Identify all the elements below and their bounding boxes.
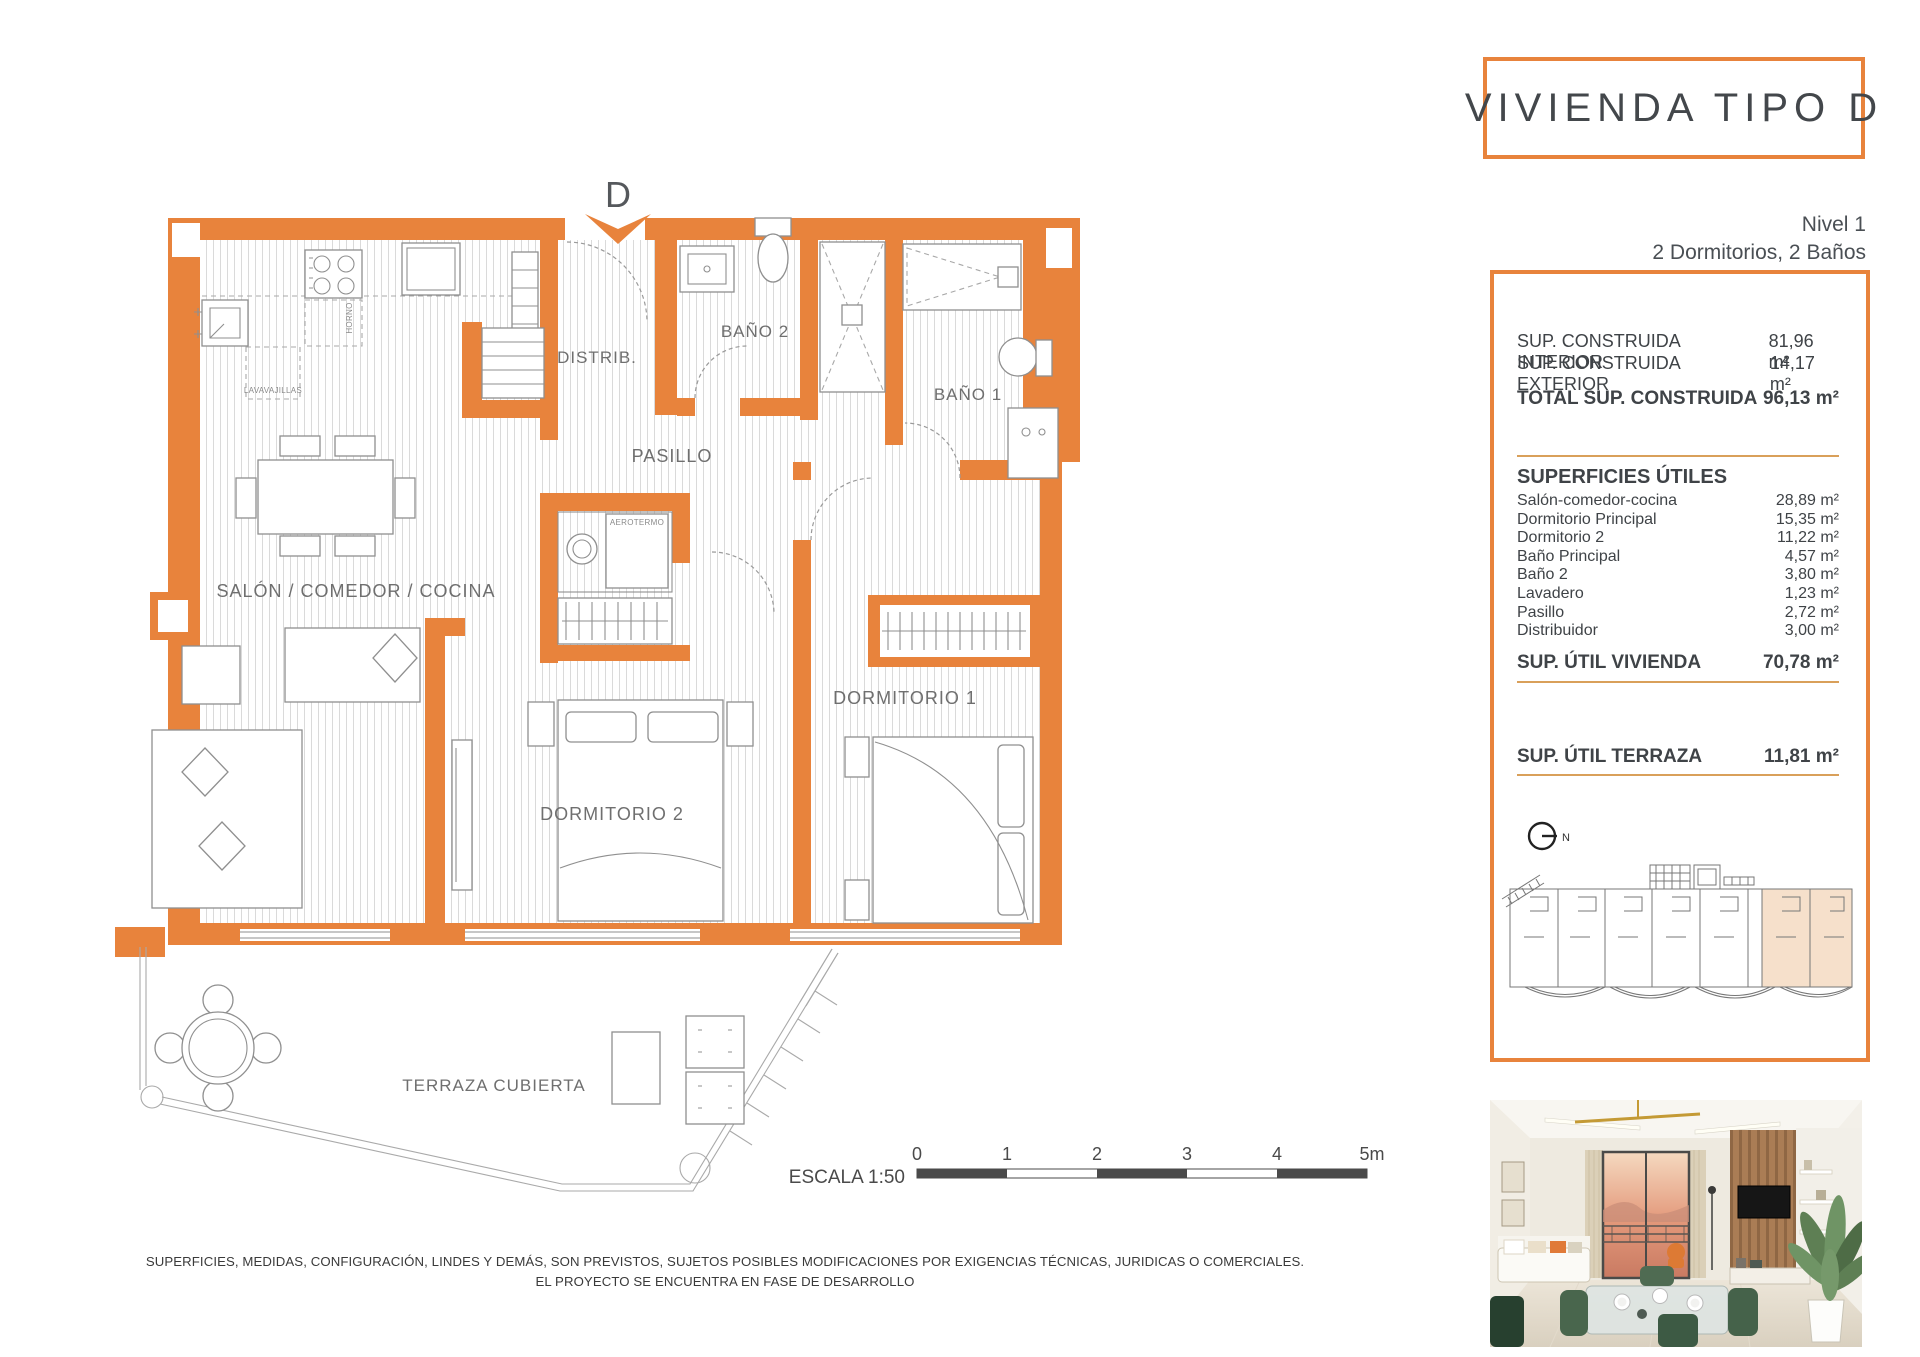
aerotermo-label: AEROTERMO bbox=[610, 518, 664, 527]
scale-label: ESCALA 1:50 bbox=[789, 1167, 905, 1188]
terrace-area-label: SUP. ÚTIL TERRAZA bbox=[1517, 746, 1702, 768]
terrace bbox=[140, 947, 838, 1191]
area-row: Pasillo2,72 m² bbox=[1517, 604, 1839, 623]
highlighted-unit bbox=[1762, 889, 1852, 987]
scale-bar: ESCALA 1:50 0 1 2 3 4 5m bbox=[789, 1144, 1385, 1188]
room-label-terraza: TERRAZA CUBIERTA bbox=[402, 1076, 586, 1095]
entry-arrow-icon bbox=[585, 214, 651, 244]
room-label-pasillo: PASILLO bbox=[632, 446, 713, 466]
area-row: Lavadero1,23 m² bbox=[1517, 585, 1839, 604]
room-label-dorm1: DORMITORIO 1 bbox=[833, 688, 977, 708]
useful-total-row: SUP. ÚTIL VIVIENDA 70,78 m² bbox=[1494, 652, 1866, 674]
sheet-title-box: VIVIENDA TIPO D bbox=[1483, 57, 1865, 159]
scale-tick: 0 bbox=[912, 1144, 922, 1164]
level-label: Nivel 1 bbox=[1400, 211, 1866, 239]
north-compass-icon: N bbox=[1524, 816, 1588, 856]
page-title: VIVIENDA TIPO D bbox=[1465, 86, 1883, 131]
dishwasher-label: LAVAVAJILLAS bbox=[244, 386, 302, 395]
disclaimer-line2: EL PROYECTO SE ENCUENTRA EN FASE DE DESA… bbox=[100, 1272, 1350, 1292]
disclaimer-line1: SUPERFICIES, MEDIDAS, CONFIGURACIÓN, LIN… bbox=[100, 1252, 1350, 1272]
mini-locator-plan bbox=[1500, 857, 1866, 1007]
terrace-area-row: SUP. ÚTIL TERRAZA 11,81 m² bbox=[1494, 746, 1866, 768]
room-label-distrib: DISTRIB. bbox=[557, 348, 637, 367]
sheet-subtitle: Nivel 1 2 Dormitorios, 2 Baños bbox=[1400, 211, 1866, 267]
scale-tick: 3 bbox=[1182, 1144, 1192, 1164]
area-row: Baño 23,80 m² bbox=[1517, 566, 1839, 585]
scale-tick: 5m bbox=[1359, 1144, 1384, 1164]
built-total-value: 96,13 m² bbox=[1763, 388, 1839, 410]
useful-total-value: 70,78 m² bbox=[1763, 652, 1839, 674]
interior-render-photo bbox=[1490, 1100, 1862, 1347]
area-row: Dormitorio 211,22 m² bbox=[1517, 529, 1839, 548]
built-total-label: TOTAL SUP. CONSTRUIDA bbox=[1517, 388, 1757, 410]
dorm1-bed bbox=[845, 737, 1033, 923]
compass-north-label: N bbox=[1562, 832, 1570, 844]
terrace-area-value: 11,81 m² bbox=[1764, 746, 1839, 768]
scale-tick: 4 bbox=[1272, 1144, 1282, 1164]
oven-label: HORNO bbox=[345, 302, 354, 333]
room-label-salon: SALÓN / COMEDOR / COCINA bbox=[216, 580, 495, 601]
scale-tick: 2 bbox=[1092, 1144, 1102, 1164]
terrace-windows bbox=[240, 929, 1020, 941]
useful-total-label: SUP. ÚTIL VIVIENDA bbox=[1517, 652, 1701, 674]
areas-panel: SUP. CONSTRUIDA INTERIOR 81,96 m² SUP. C… bbox=[1490, 270, 1870, 1062]
entry-letter: D bbox=[605, 174, 631, 215]
hall-wardrobe bbox=[558, 598, 672, 644]
area-row: Salón-comedor-cocina28,89 m² bbox=[1517, 492, 1839, 511]
distrib-closet bbox=[482, 328, 544, 398]
useful-areas-header: SUPERFICIES ÚTILES bbox=[1517, 466, 1727, 489]
useful-areas-list: Salón-comedor-cocina28,89 m² Dormitorio … bbox=[1494, 492, 1866, 641]
room-label-dorm2: DORMITORIO 2 bbox=[540, 804, 684, 824]
entry-marker: D bbox=[585, 174, 651, 244]
panel-divider bbox=[1517, 774, 1839, 776]
area-row: Dormitorio Principal15,35 m² bbox=[1517, 511, 1839, 530]
scale-tick: 1 bbox=[1002, 1144, 1012, 1164]
built-total-row: TOTAL SUP. CONSTRUIDA 96,13 m² bbox=[1494, 388, 1866, 410]
area-row: Distribuidor3,00 m² bbox=[1517, 622, 1839, 641]
panel-divider bbox=[1517, 681, 1839, 683]
floor-plan: D bbox=[0, 0, 1460, 1357]
panel-divider bbox=[1517, 455, 1839, 457]
disclaimer: SUPERFICIES, MEDIDAS, CONFIGURACIÓN, LIN… bbox=[100, 1252, 1350, 1292]
room-label-bano1: BAÑO 1 bbox=[934, 385, 1002, 404]
rooms-summary-label: 2 Dormitorios, 2 Baños bbox=[1400, 239, 1866, 267]
room-label-bano2: BAÑO 2 bbox=[721, 322, 789, 341]
area-row: Baño Principal4,57 m² bbox=[1517, 548, 1839, 567]
